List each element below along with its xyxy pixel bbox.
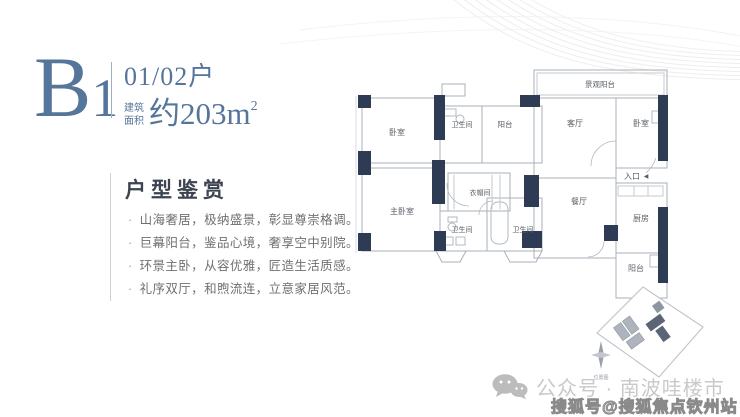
feature-text: 礼序双厅，和煦流连，立意家居风范。 bbox=[140, 278, 359, 301]
room-label-kitchen: 厨房 bbox=[633, 213, 649, 223]
section-title: 户型鉴赏 bbox=[125, 174, 229, 204]
site-boundary bbox=[597, 287, 703, 377]
bullet: · bbox=[128, 209, 133, 232]
feature-item: · 礼序双厅，和煦流连，立意家居风范。 bbox=[128, 278, 359, 301]
area-superscript: 2 bbox=[251, 99, 258, 114]
room-label-bedroom-top: 卧室 bbox=[389, 127, 405, 137]
room-label-dining-room: 餐厅 bbox=[571, 197, 587, 206]
feature-text: 山海奢居，极纳盛景，彰显尊崇格调。 bbox=[140, 209, 359, 232]
entrance-arrow-icon: ◀ bbox=[644, 174, 649, 180]
wechat-icon bbox=[492, 374, 528, 400]
room-label-bath-left: 卫生间 bbox=[452, 225, 473, 234]
unit-code: B1 bbox=[34, 44, 118, 130]
feature-text: 巨幕阳台，鉴品心境，奢享空中别院。 bbox=[140, 232, 359, 255]
features-rule bbox=[110, 173, 111, 301]
area-prefix: 建筑 面积 bbox=[124, 103, 144, 128]
compass-icon bbox=[591, 341, 611, 369]
area-row: 建筑 面积 约203m2 bbox=[124, 99, 258, 128]
room-label-view-balcony: 景观阳台 bbox=[585, 79, 615, 89]
siteplan: 位置图 bbox=[583, 283, 713, 383]
bullet: · bbox=[128, 278, 133, 301]
entrance-label: 入口 bbox=[624, 172, 640, 181]
sohu-watermark: 搜狐号@搜狐焦点钦州站 bbox=[551, 393, 738, 417]
partition-walls bbox=[356, 70, 667, 298]
unit-info: 01/02户 建筑 面积 约203m2 bbox=[124, 56, 258, 128]
room-label-master-bedroom: 主卧室 bbox=[390, 206, 414, 216]
structural-walls bbox=[358, 95, 668, 283]
room-label-balcony-top: 阳台 bbox=[498, 119, 513, 129]
room-label-living-room: 客厅 bbox=[567, 118, 583, 128]
fixtures bbox=[444, 109, 662, 267]
feature-item: · 巨幕阳台，鉴品心境，奢享空中别院。 bbox=[128, 232, 359, 255]
area-value: 约203m2 bbox=[149, 99, 258, 128]
bullet: · bbox=[128, 232, 133, 255]
door-swings bbox=[447, 141, 656, 257]
feature-item: · 山海奢居，极纳盛景，彰显尊崇格调。 bbox=[128, 209, 359, 232]
unit-code-number: 1 bbox=[91, 68, 118, 128]
feature-text: 环景主卧，从容优雅，匠造生活质感。 bbox=[140, 255, 359, 278]
room-label-bath-top: 卫生间 bbox=[452, 120, 473, 129]
room-label-cloakroom: 衣帽间 bbox=[470, 188, 491, 197]
features-list: · 山海奢居，极纳盛景，彰显尊崇格调。 · 巨幕阳台，鉴品心境，奢享空中别院。 … bbox=[128, 209, 359, 301]
households-label: 01/02户 bbox=[124, 56, 258, 93]
feature-item: · 环景主卧，从容优雅，匠造生活质感。 bbox=[128, 255, 359, 278]
promo-slide: B1 01/02户 建筑 面积 约203m2 户型鉴赏 · 山海奢居，极纳盛景，… bbox=[0, 0, 740, 417]
bullet: · bbox=[128, 255, 133, 278]
room-label-bedroom-right: 卧室 bbox=[633, 118, 649, 128]
room-label-bath-right: 卫生间 bbox=[513, 225, 534, 234]
unit-divider bbox=[111, 62, 112, 118]
unit-code-letter: B bbox=[34, 39, 91, 135]
room-label-balcony-bottom: 阳台 bbox=[628, 263, 644, 273]
